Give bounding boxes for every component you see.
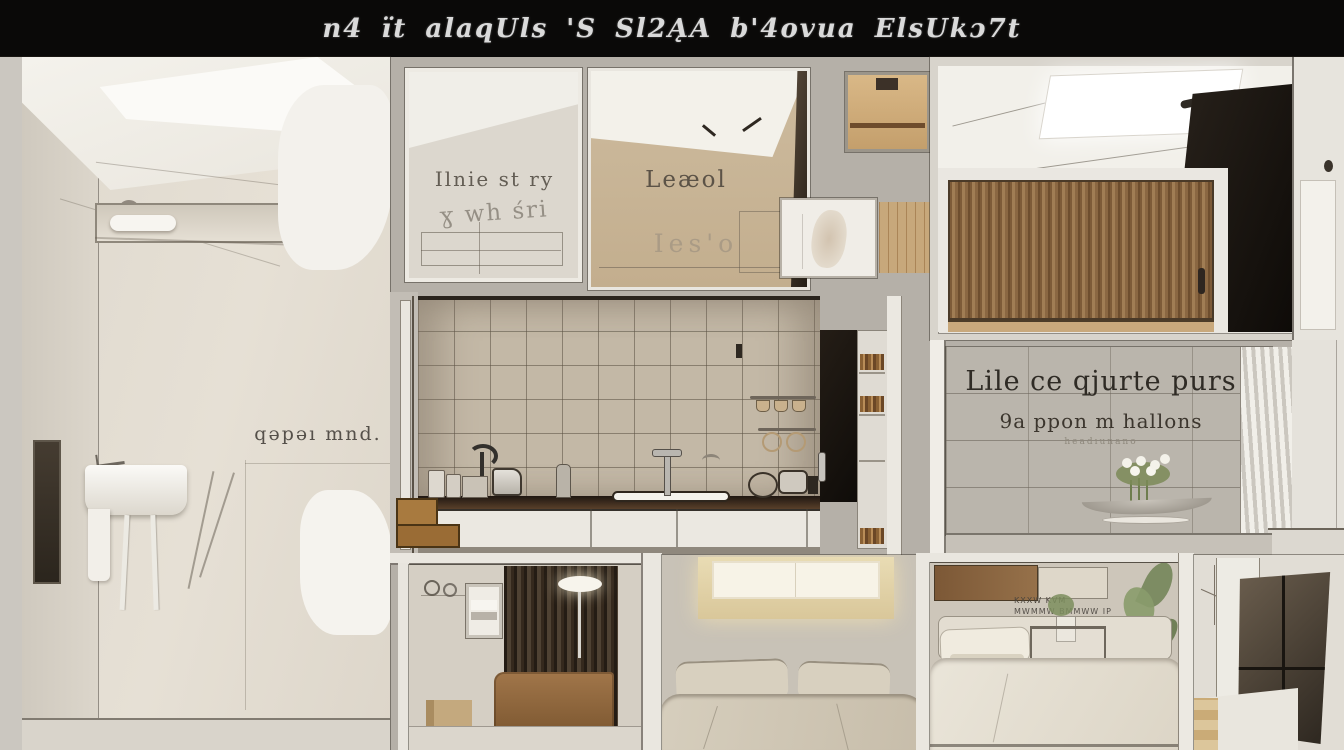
sketch-left-furniture xyxy=(421,232,563,266)
wood-niche xyxy=(845,72,930,152)
colander xyxy=(748,472,778,498)
wall-hook-1 xyxy=(424,580,440,596)
alcove-divider xyxy=(795,563,796,597)
bed2-duvet xyxy=(930,658,1178,750)
entry-floor xyxy=(409,726,641,750)
apartment-collage-image: n4 ït alaqUls 'S Sl2ĄA b'4ovua ElsUkɔ7t … xyxy=(0,0,1344,750)
hanging-towel xyxy=(88,509,110,581)
shelf-line-2 xyxy=(859,414,885,416)
white-wall-blob-bottom xyxy=(300,490,390,635)
lattice-screen xyxy=(879,202,930,273)
sketch-left-line-h xyxy=(421,250,561,251)
sink-leg-1 xyxy=(120,515,130,610)
sketch-room-right-panel: Leæol Ies'o xyxy=(588,68,810,290)
bedroom-right-jamb xyxy=(1178,553,1194,750)
door-handle xyxy=(1198,268,1205,294)
drawer-seam-1 xyxy=(590,509,592,547)
bed2-base-line xyxy=(930,744,1178,747)
black-faucet-arc xyxy=(468,444,498,468)
rail-cup-2 xyxy=(774,400,788,412)
floor-lamp-stem xyxy=(578,592,581,658)
art-line xyxy=(802,214,803,269)
sketch-right-ceiling xyxy=(591,71,807,157)
shelf-line-1 xyxy=(859,372,885,374)
shelf-books-1 xyxy=(860,354,884,370)
bathroom-wall-text: qəpəı mnd. xyxy=(248,423,388,445)
step-stool-upper xyxy=(396,498,438,526)
bedroom-middle-right-jamb xyxy=(916,553,930,750)
shelf-books-3 xyxy=(860,528,884,544)
cabinet-handle xyxy=(818,452,826,482)
kitchen-backsplash xyxy=(418,296,820,502)
niche-vent xyxy=(876,78,898,90)
soap-arc xyxy=(702,454,720,467)
sink-leg-2 xyxy=(150,515,158,610)
rail-cup-3 xyxy=(792,400,806,412)
sketch-right-text-1: Leæol xyxy=(611,167,761,193)
wall-item-small xyxy=(736,344,742,358)
right-wall-panel xyxy=(1300,180,1336,330)
towel-stack-1 xyxy=(471,600,497,610)
entry-right-jamb xyxy=(641,553,662,750)
alcove-text-3: headıunano xyxy=(956,437,1246,447)
dark-recessed-panel xyxy=(33,440,61,584)
door-knob xyxy=(1324,160,1333,172)
framed-artwork xyxy=(780,198,877,278)
towel-stack-2 xyxy=(471,612,497,620)
pleated-curtain xyxy=(1240,347,1293,533)
rail-plate-2 xyxy=(786,432,806,452)
left-edge-strip xyxy=(0,57,23,750)
kitchen-base-cabinets xyxy=(418,509,820,547)
wood-floor-strip xyxy=(1194,698,1218,750)
title-bar: n4 ït alaqUls 'S Sl2ĄA b'4ovua ElsUkɔ7t xyxy=(0,0,1344,57)
wall-sink xyxy=(85,465,187,515)
center-faucet-stem xyxy=(664,452,671,496)
flower-blooms xyxy=(1122,458,1132,468)
lit-alcove-panel xyxy=(712,561,880,599)
floor-lamp-shade xyxy=(558,576,602,592)
bedroom-middle xyxy=(662,555,916,750)
drawer-seam-2 xyxy=(676,509,678,547)
rail-plate-1 xyxy=(762,432,782,452)
center-faucet-spout xyxy=(652,449,682,457)
entry-room xyxy=(409,565,641,750)
towel-shelf xyxy=(466,584,502,638)
alcove-text-1: Lile ce qjurte purs xyxy=(956,366,1246,397)
bathroom-floor xyxy=(22,718,390,750)
alcove-ledge xyxy=(1268,528,1344,555)
sketch-left-ceiling xyxy=(409,72,579,152)
alcove-text-2: 9a ppon m hallons xyxy=(956,409,1246,433)
bedroom-right: KXXW KVM MWMMW BMMWW IP xyxy=(930,563,1178,750)
step-stool-lower xyxy=(396,524,460,548)
alcove-pilaster xyxy=(930,340,946,555)
drawer-seam-3 xyxy=(806,509,808,547)
bed-duvet xyxy=(662,694,916,750)
tile-joint-v xyxy=(245,460,246,710)
jar-2 xyxy=(446,474,461,498)
kettle xyxy=(492,468,522,496)
wardrobe-panel xyxy=(930,57,1344,340)
frame-mullion-h xyxy=(1238,667,1334,670)
wall-rail-2 xyxy=(758,428,816,431)
entry-top-beam xyxy=(390,553,662,565)
sketch-left-text-2: ɣ wh śri xyxy=(418,195,569,231)
rail-cup-1 xyxy=(756,400,770,412)
bottle xyxy=(556,464,571,498)
jar-1 xyxy=(428,470,445,498)
canister xyxy=(462,476,488,498)
rolled-towel xyxy=(110,215,176,231)
alcove-text-block: Lile ce qjurte purs 9a ppon m hallons he… xyxy=(956,366,1246,447)
shelf-books-2 xyxy=(860,396,884,412)
alcove-base xyxy=(946,533,1272,555)
kitchen-end-column xyxy=(887,296,902,556)
niche-shelf xyxy=(850,123,925,128)
kitchen-sink xyxy=(612,491,730,502)
title-text: n4 ït alaqUls 'S Sl2ĄA b'4ovua ElsUkɔ7t xyxy=(322,14,1021,44)
overhead-cabinet-white xyxy=(1038,567,1108,599)
bathroom-panel: qəpəı mnd. xyxy=(0,57,390,750)
sketch-left-text-1: Ilnie st ry xyxy=(417,167,572,191)
right-wall-seam xyxy=(1336,340,1337,555)
hook-rail xyxy=(421,595,465,596)
bedroom-right-beam xyxy=(930,553,1192,563)
tile-joint-h xyxy=(245,463,390,464)
utensil-dark xyxy=(808,476,818,494)
pot xyxy=(778,470,808,494)
shelf-line-3 xyxy=(859,460,885,462)
wood-slat-door xyxy=(948,180,1214,320)
dish-plate xyxy=(1102,516,1190,524)
nightstand-plant xyxy=(1048,594,1074,616)
wall-rail xyxy=(750,396,816,399)
corner-sketch-panel xyxy=(1194,555,1344,750)
sketch-hatch-2 xyxy=(199,472,235,577)
sketch-room-left-panel: Ilnie st ry ɣ wh śri xyxy=(405,68,582,282)
art-figure-sketch xyxy=(808,208,850,270)
white-wall-blob-top xyxy=(278,85,390,270)
sketch-left-line-v xyxy=(479,222,480,274)
wardrobe-floor-strip xyxy=(948,320,1214,332)
